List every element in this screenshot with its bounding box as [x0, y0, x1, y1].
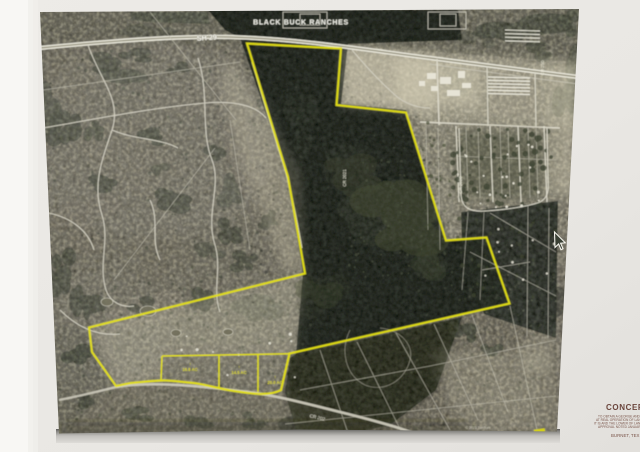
svg-text:16.8 AC: 16.8 AC [182, 367, 197, 372]
svg-text:↑: ↑ [238, 365, 240, 370]
svg-text:CR 2020: CR 2020 [458, 176, 463, 194]
svg-text:↑: ↑ [189, 362, 191, 367]
svg-text:CR 250: CR 250 [540, 60, 545, 75]
svg-text:20.0 AC: 20.0 AC [267, 380, 282, 385]
svg-text:SH 29: SH 29 [197, 32, 218, 42]
svg-text:© 2023 TomTom: © 2023 TomTom [466, 426, 491, 430]
svg-text:CR 2021: CR 2021 [342, 169, 347, 187]
svg-text:14.5 AC: 14.5 AC [231, 370, 246, 375]
svg-text:↑: ↑ [274, 375, 276, 380]
svg-text:APPROVAL NOTED JANUARY PL: APPROVAL NOTED JANUARY PL [598, 425, 640, 429]
svg-text:CONCEPT P: CONCEPT P [606, 403, 640, 412]
svg-text:BURNET, TEX: BURNET, TEX [611, 433, 640, 438]
svg-text:BLACK BUCK RANCHES: BLACK BUCK RANCHES [253, 20, 349, 27]
